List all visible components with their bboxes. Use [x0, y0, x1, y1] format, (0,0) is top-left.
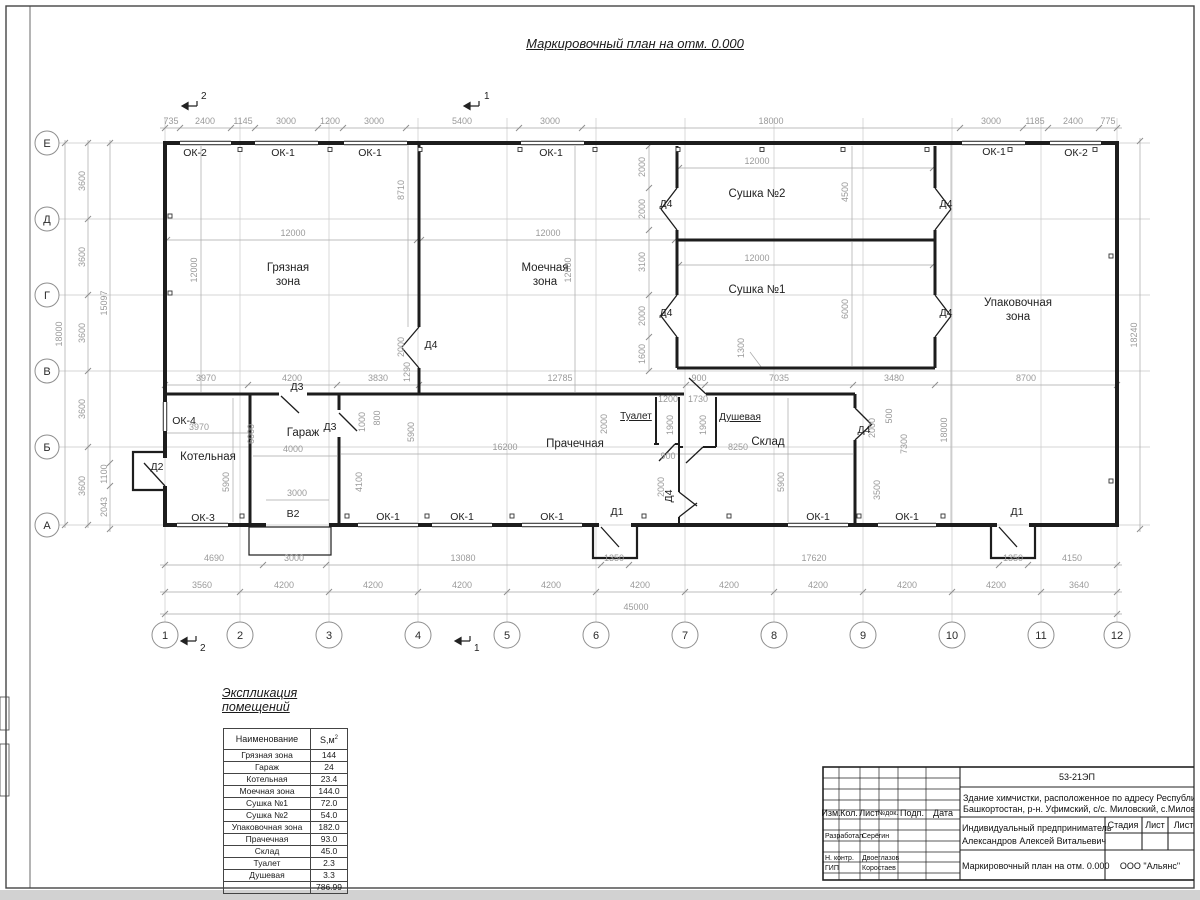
dim-label: 3480 [884, 373, 904, 383]
room-area-cell: 54.0 [311, 810, 348, 822]
room-area-cell: 2.3 [311, 858, 348, 870]
dim-label: 3970 [196, 373, 216, 383]
axis-row-label: Б [43, 442, 50, 454]
dim-label: 2400 [195, 116, 215, 126]
dim-label: 5900 [776, 472, 786, 492]
table-row: Склад45.0 [224, 846, 348, 858]
stamp-col-header: Дата [933, 808, 953, 818]
area-unit: S,м [320, 735, 335, 745]
dim-label: 4200 [630, 580, 650, 590]
dim-label: 3000 [276, 116, 296, 126]
dim-label: 1100 [99, 464, 109, 483]
room-label-drying1: Сушка №1 [729, 284, 786, 296]
dim-label: 3600 [77, 476, 87, 496]
dim-label: 12000 [744, 156, 769, 166]
stamp-object-line2: Башкортостан, р-н. Уфимский, с/с. Миловс… [963, 804, 1196, 814]
dim-label: 45000 [623, 602, 648, 612]
room-area-cell: 3.3 [311, 870, 348, 882]
room-area-cell: 182.0 [311, 822, 348, 834]
room-label-packing-zone: Упаковочная [984, 297, 1052, 309]
room-label-packing-zone: зона [1006, 311, 1031, 323]
axis-grid-lines [59, 118, 1150, 622]
table-row: Сушка №254.0 [224, 810, 348, 822]
axis-col-label: 8 [771, 630, 777, 642]
area-unit-sup: 2 [335, 735, 338, 741]
dim-label: 4200 [363, 580, 383, 590]
door-label: Д4 [663, 489, 675, 502]
stamp-client-line2: Александров Алексей Витальевич [962, 836, 1106, 846]
dim-label: 3600 [77, 323, 87, 343]
stamp-col-header: Лист [859, 808, 879, 818]
dim-label: 4200 [274, 580, 294, 590]
room-label-drying2: Сушка №2 [729, 188, 786, 200]
dim-label: 3000 [364, 116, 384, 126]
room-area-cell: 23.4 [311, 774, 348, 786]
window-label: ОК-1 [540, 511, 564, 523]
dim-label: 6000 [840, 299, 850, 319]
window-label: ОК-1 [806, 511, 830, 523]
dim-label: 4100 [354, 472, 364, 492]
room-name-cell: Прачечная [224, 834, 311, 846]
explication-col-header: Наименование [224, 729, 311, 750]
table-row: Грязная зона144 [224, 750, 348, 762]
dim-label: 900 [691, 373, 706, 383]
dim-label: 8700 [1016, 373, 1036, 383]
room-label-laundry: Прачечная [546, 438, 604, 450]
dim-label: 8250 [728, 442, 748, 452]
section-mark-label: 1 [484, 91, 490, 102]
room-name-cell: Душевая [224, 870, 311, 882]
window-strips [162, 140, 1101, 528]
stamp-org: ООО "Альянс" [1120, 861, 1180, 871]
room-name-cell: Моечная зона [224, 786, 311, 798]
dim-label: 1145 [233, 116, 252, 126]
section-mark-label: 2 [200, 643, 206, 654]
dim-label: 4000 [283, 444, 303, 454]
dim-label: 3640 [1069, 580, 1089, 590]
stamp-name: Двоеглазов [862, 855, 899, 862]
dim-label: 1600 [637, 344, 647, 364]
room-name-cell: Туалет [224, 858, 311, 870]
stamp-code: 53-21ЭП [1059, 772, 1095, 782]
window-label: ОК-1 [982, 146, 1006, 158]
table-row: Моечная зона144.0 [224, 786, 348, 798]
dim-label: 5900 [221, 472, 231, 492]
stamp-doc-title: Маркировочный план на отм. 0.000 [962, 861, 1109, 871]
dim-label: 2000 [637, 199, 647, 219]
dim-label: 5900 [406, 422, 416, 442]
dim-label: 4200 [986, 580, 1006, 590]
dim-label: 2000 [637, 306, 647, 326]
table-row: Сушка №172.0 [224, 798, 348, 810]
dim-label: 500 [884, 408, 894, 423]
explication-col-header: S,м2 [311, 729, 348, 750]
dim-label: 3560 [192, 580, 212, 590]
axis-row-label: Г [44, 290, 50, 302]
stamp-name: Коростаев [862, 865, 896, 872]
window-label: ОК-2 [183, 147, 207, 159]
dim-label: 5400 [452, 116, 472, 126]
stamp-object-line1: Здание химчистки, расположенное по адрес… [963, 793, 1196, 803]
dim-label: 1350 [1003, 553, 1023, 563]
dim-label: 1300 [736, 338, 746, 358]
room-label-shower: Душевая [719, 412, 761, 423]
axis-col-label: 2 [237, 630, 243, 642]
table-row: Гараж24 [224, 762, 348, 774]
table-row-total: 786.99 [224, 882, 348, 894]
dim-label: 2000 [637, 157, 647, 177]
dim-label: 12000 [535, 228, 560, 238]
dim-label: 3000 [981, 116, 1001, 126]
window-label: ОК-1 [271, 147, 295, 159]
dim-label: 7035 [769, 373, 789, 383]
stamp-stage-header: Стадия [1108, 820, 1139, 830]
dim-label: 3500 [872, 480, 882, 500]
dim-label: 4200 [719, 580, 739, 590]
axis-col-label: 4 [415, 630, 421, 642]
gate-label: В2 [287, 508, 300, 520]
stamp-stage-header: Лист [1145, 820, 1165, 830]
dim-label: 1000 [357, 412, 367, 432]
window-edge [0, 890, 1200, 900]
axis-col-label: 9 [860, 630, 866, 642]
window-label: ОК-3 [191, 512, 215, 524]
dim-label: 16200 [492, 442, 517, 452]
dim-label: 2043 [99, 497, 109, 517]
dim-label: 3100 [637, 252, 647, 272]
dim-label: 2000 [599, 414, 609, 434]
stamp-role: ГИП [825, 865, 839, 872]
dim-label: 18000 [939, 417, 949, 442]
dim-label: 1900 [665, 415, 675, 435]
axis-col-label: 7 [682, 630, 688, 642]
total-area-cell: 786.99 [311, 882, 348, 894]
explication-table: Наименование S,м2 Грязная зона144 Гараж2… [223, 728, 348, 894]
table-row: Туалет2.3 [224, 858, 348, 870]
room-area-cell: 24 [311, 762, 348, 774]
dim-label: 735 [163, 116, 178, 126]
room-label-wash-zone: зона [533, 276, 558, 288]
room-name-cell: Котельная [224, 774, 311, 786]
dim-label: 1350 [604, 553, 624, 563]
dim-label: 3600 [77, 247, 87, 267]
dim-label: 1290 [402, 362, 412, 382]
dim-label: 1200 [658, 394, 678, 404]
dim-label: 3000 [284, 553, 304, 563]
window-label: ОК-2 [1064, 147, 1088, 159]
room-name-cell [224, 882, 311, 894]
dim-label: 17620 [801, 553, 826, 563]
dim-label: 12000 [189, 257, 199, 282]
dim-label: 4150 [1062, 553, 1082, 563]
door-label: Д1 [611, 506, 624, 518]
stamp-client-line1: Индивидуальный предприниматель [962, 823, 1112, 833]
door-label: Д4 [858, 424, 871, 436]
axis-col-label: 5 [504, 630, 510, 642]
room-area-cell: 72.0 [311, 798, 348, 810]
axis-row-label: Е [43, 138, 50, 150]
dim-label: 900 [660, 451, 675, 461]
room-label-toilet: Туалет [620, 411, 652, 422]
door-label: Д4 [940, 198, 953, 210]
dim-label: 18000 [758, 116, 783, 126]
window-label: ОК-1 [358, 147, 382, 159]
dim-label: 4200 [897, 580, 917, 590]
dim-label: 12000 [280, 228, 305, 238]
dim-label: 3000 [540, 116, 560, 126]
dim-label: 18000 [54, 321, 64, 346]
dim-label: 8710 [396, 180, 406, 200]
door-label: Д3 [291, 381, 304, 393]
dim-label: 4200 [541, 580, 561, 590]
window-label: ОК-1 [450, 511, 474, 523]
section-marks: 2 1 2 1 [181, 91, 490, 654]
explication-title: Экспликация помещений [222, 686, 368, 714]
dim-label: 4690 [204, 553, 224, 563]
door-label: Д4 [660, 198, 673, 210]
dim-label: 13080 [450, 553, 475, 563]
windows [162, 140, 1113, 528]
stamp-col-header: №док. [878, 810, 899, 817]
room-area-cell: 93.0 [311, 834, 348, 846]
page-title: Маркировочный план на отм. 0.000 [400, 36, 870, 51]
room-labels: Грязная зона Моечная зона Сушка №2 Сушка… [180, 188, 1052, 463]
dim-label: 2400 [1063, 116, 1083, 126]
dim-label: 1730 [688, 394, 708, 404]
door-label: Д1 [1011, 506, 1024, 518]
dim-label: 15097 [99, 290, 109, 315]
stamp-col-header: Подп. [900, 808, 924, 818]
room-label-storage: Склад [751, 436, 785, 448]
axis-col-label: 11 [1035, 630, 1046, 642]
opening-labels: ОК-2 ОК-1 ОК-1 ОК-1 ОК-1 ОК-2 ОК-3 ОК-1 … [151, 146, 1088, 524]
dim-label: 3830 [368, 373, 388, 383]
floor-plan-canvas: Е Д Г В Б А 1 2 3 4 5 6 7 8 9 10 11 12 2 [0, 0, 1200, 900]
stamp-role: Н. контр. [825, 855, 854, 862]
room-name-cell: Упаковочная зона [224, 822, 311, 834]
axis-col-label: 1 [162, 630, 168, 642]
axis-col-label: 3 [326, 630, 332, 642]
room-name-cell: Сушка №1 [224, 798, 311, 810]
axis-col-label: 12 [1111, 630, 1123, 642]
axis-row-label: А [43, 520, 51, 532]
dim-label: 3600 [77, 171, 87, 191]
section-mark-label: 1 [474, 643, 480, 654]
section-mark-label: 2 [201, 91, 207, 102]
dim-label: 18240 [1129, 322, 1139, 347]
dim-label: 6000 [246, 424, 256, 444]
dim-label: 775 [1100, 116, 1115, 126]
axis-col-label: 10 [946, 630, 958, 642]
room-area-cell: 45.0 [311, 846, 348, 858]
dim-label: 800 [372, 410, 382, 425]
dim-label: 2000 [396, 337, 406, 357]
drawing-sheet: { "title": "Маркировочный план на отм. 0… [0, 0, 1200, 900]
dim-label: 3600 [77, 399, 87, 419]
walls [133, 141, 1119, 558]
explication-block: Экспликация помещений Наименование S,м2 … [218, 686, 368, 894]
room-label-wash-zone: Моечная [521, 262, 568, 274]
door-label: Д3 [324, 421, 337, 433]
stamp-name: Серёгин [862, 833, 889, 840]
room-name-cell: Склад [224, 846, 311, 858]
table-row: Упаковочная зона182.0 [224, 822, 348, 834]
window-label: ОК-4 [172, 415, 196, 427]
door-label: Д4 [660, 307, 673, 319]
door-label: Д4 [425, 339, 438, 351]
dim-label: 1185 [1025, 116, 1044, 126]
door-label: Д4 [940, 307, 953, 319]
room-label-boiler: Котельная [180, 451, 236, 463]
table-row: Котельная23.4 [224, 774, 348, 786]
room-label-dirty-zone: Грязная [267, 262, 309, 274]
dim-label: 1200 [320, 116, 340, 126]
dim-label: 7300 [899, 434, 909, 454]
window-label: ОК-1 [376, 511, 400, 523]
room-name-cell: Гараж [224, 762, 311, 774]
dim-label: 12000 [744, 253, 769, 263]
axis-row-label: Д [43, 214, 51, 226]
room-name-cell: Сушка №2 [224, 810, 311, 822]
door-label: Д2 [151, 461, 164, 473]
table-row: Душевая3.3 [224, 870, 348, 882]
dim-label: 1900 [698, 415, 708, 435]
dim-label: 3000 [287, 488, 307, 498]
axis-bubbles: Е Д Г В Б А 1 2 3 4 5 6 7 8 9 10 11 12 [35, 131, 1130, 648]
stamp-col-header: Кол. [840, 808, 858, 818]
dimension-labels: 735 2400 1145 3000 1200 3000 5400 3000 1… [54, 116, 1139, 612]
dim-label: 4200 [452, 580, 472, 590]
dim-label: 12785 [547, 373, 572, 383]
room-area-cell: 144 [311, 750, 348, 762]
room-name-cell: Грязная зона [224, 750, 311, 762]
axis-col-label: 6 [593, 630, 599, 642]
window-label: ОК-1 [895, 511, 919, 523]
room-label-dirty-zone: зона [276, 276, 301, 288]
title-block: 53-21ЭП Здание химчистки, расположенное … [821, 767, 1200, 880]
stamp-role: Разработал [825, 832, 863, 840]
room-area-cell: 144.0 [311, 786, 348, 798]
stamp-col-header: Изм. [821, 808, 840, 818]
room-label-garage: Гараж [287, 427, 320, 439]
dim-label: 4500 [840, 182, 850, 202]
axis-row-label: В [43, 366, 50, 378]
dim-label: 4200 [808, 580, 828, 590]
window-label: ОК-1 [539, 147, 563, 159]
table-row: Прачечная93.0 [224, 834, 348, 846]
